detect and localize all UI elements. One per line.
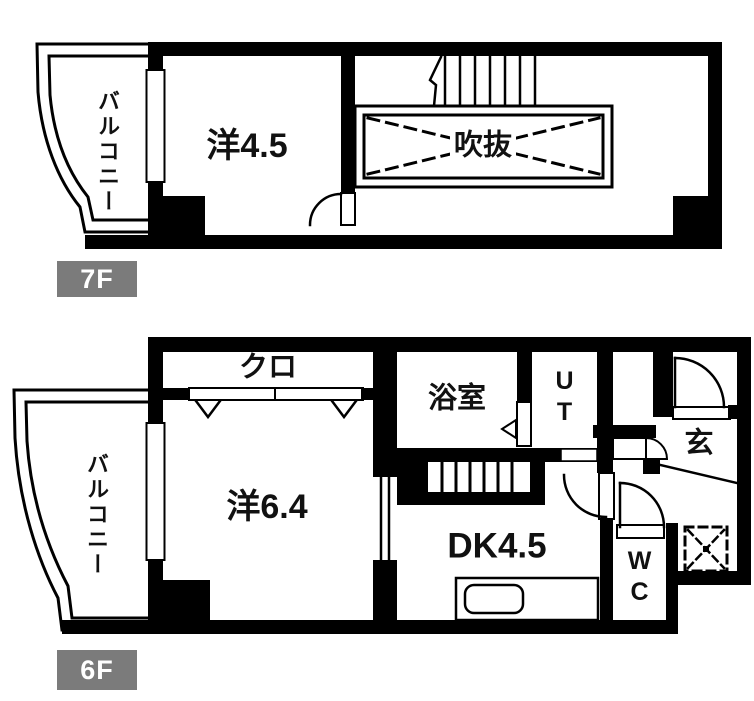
- stairs-right-block: [530, 462, 545, 505]
- closet-wall-stub: [163, 388, 189, 400]
- stairs-7f: [430, 56, 535, 106]
- wc-door-arc: [620, 483, 664, 527]
- wall-wc-bottom: [600, 622, 678, 634]
- window-7f: [147, 70, 165, 182]
- wall-entrance-stub: [728, 405, 751, 419]
- wall-wc-right: [666, 523, 678, 634]
- wall-right-7f: [708, 42, 722, 249]
- elevator-center-dot: [703, 546, 709, 552]
- wall-wc-left: [600, 519, 613, 622]
- closet-arrow-left: [196, 401, 220, 417]
- kitchen-sink: [465, 585, 523, 613]
- wall-ev-bottom: [678, 571, 751, 585]
- closet-slider-left: [189, 388, 275, 400]
- hall-door-panel: [613, 438, 646, 459]
- floorplan: 洋4.5 吹抜 バルコニー 7F クロ 洋6.4 浴室 UT 玄 DK4.5 W…: [0, 0, 754, 701]
- wc-door-panel: [617, 525, 664, 538]
- door-panel-western-7f: [341, 193, 355, 225]
- closet-slider-right: [275, 388, 363, 400]
- floor-label-7f: 7F: [57, 261, 137, 297]
- balcony-outer-line-6f: [14, 390, 148, 630]
- wall-divider-7f: [341, 56, 355, 193]
- genkan-step-line: [656, 464, 737, 483]
- wall-right-6f: [737, 337, 751, 585]
- room-label-balcony-6f: バルコニー: [85, 453, 107, 578]
- stairs-6f-treads: [442, 462, 512, 492]
- room-label-bathroom-6f: 浴室: [428, 385, 486, 414]
- wall-porch-left: [653, 337, 673, 417]
- wall-notch-7f: [673, 196, 708, 235]
- room-label-western-6f: 洋6.4: [226, 490, 307, 524]
- dk-door-panel: [599, 473, 614, 519]
- wall-bottom-7f: [85, 235, 722, 249]
- bath-door-panel: [517, 402, 531, 446]
- room-label-wc-6f: WC: [627, 547, 652, 609]
- closet-arrow-right: [332, 401, 356, 417]
- room-label-dk-6f: DK4.5: [447, 529, 546, 564]
- wall-hall-band: [593, 425, 656, 438]
- ut-opening: [561, 449, 597, 461]
- wall-bath-ut: [517, 352, 532, 404]
- wall-mid-lower: [373, 560, 397, 622]
- room-label-western-7f: 洋4.5: [206, 129, 287, 163]
- room-label-utility-6f: UT: [552, 367, 577, 429]
- wall-mid-upper: [373, 337, 397, 477]
- bath-door-arrow: [502, 420, 516, 438]
- room-label-entrance-6f: 玄: [684, 430, 713, 459]
- window-6f: [147, 423, 165, 560]
- stairs-bottom-band: [397, 492, 545, 505]
- balcony-outer-line: [37, 44, 148, 232]
- floor-label-6f: 6F: [57, 650, 137, 690]
- entrance-door-arc: [675, 358, 724, 407]
- closet-wall-stub2: [361, 388, 373, 400]
- hall-door-fan: [646, 438, 667, 459]
- wall-bottom-6f: [62, 620, 678, 634]
- room-label-void-7f: 吹抜: [450, 132, 516, 161]
- wall-left-upper-6f: [148, 337, 163, 423]
- wall-corner-block-7f: [148, 196, 205, 235]
- stair-break-line: [430, 57, 441, 106]
- entrance-door-panel: [673, 407, 730, 419]
- door-arc-western-7f: [310, 194, 341, 225]
- room-label-balcony-7f: バルコニー: [96, 90, 118, 215]
- wall-corner-block-6f: [148, 580, 210, 622]
- floor-7f: [37, 42, 722, 249]
- room-label-closet-6f: クロ: [239, 354, 297, 383]
- wall-hall-stub: [643, 459, 660, 474]
- wall-top-7f: [148, 42, 722, 56]
